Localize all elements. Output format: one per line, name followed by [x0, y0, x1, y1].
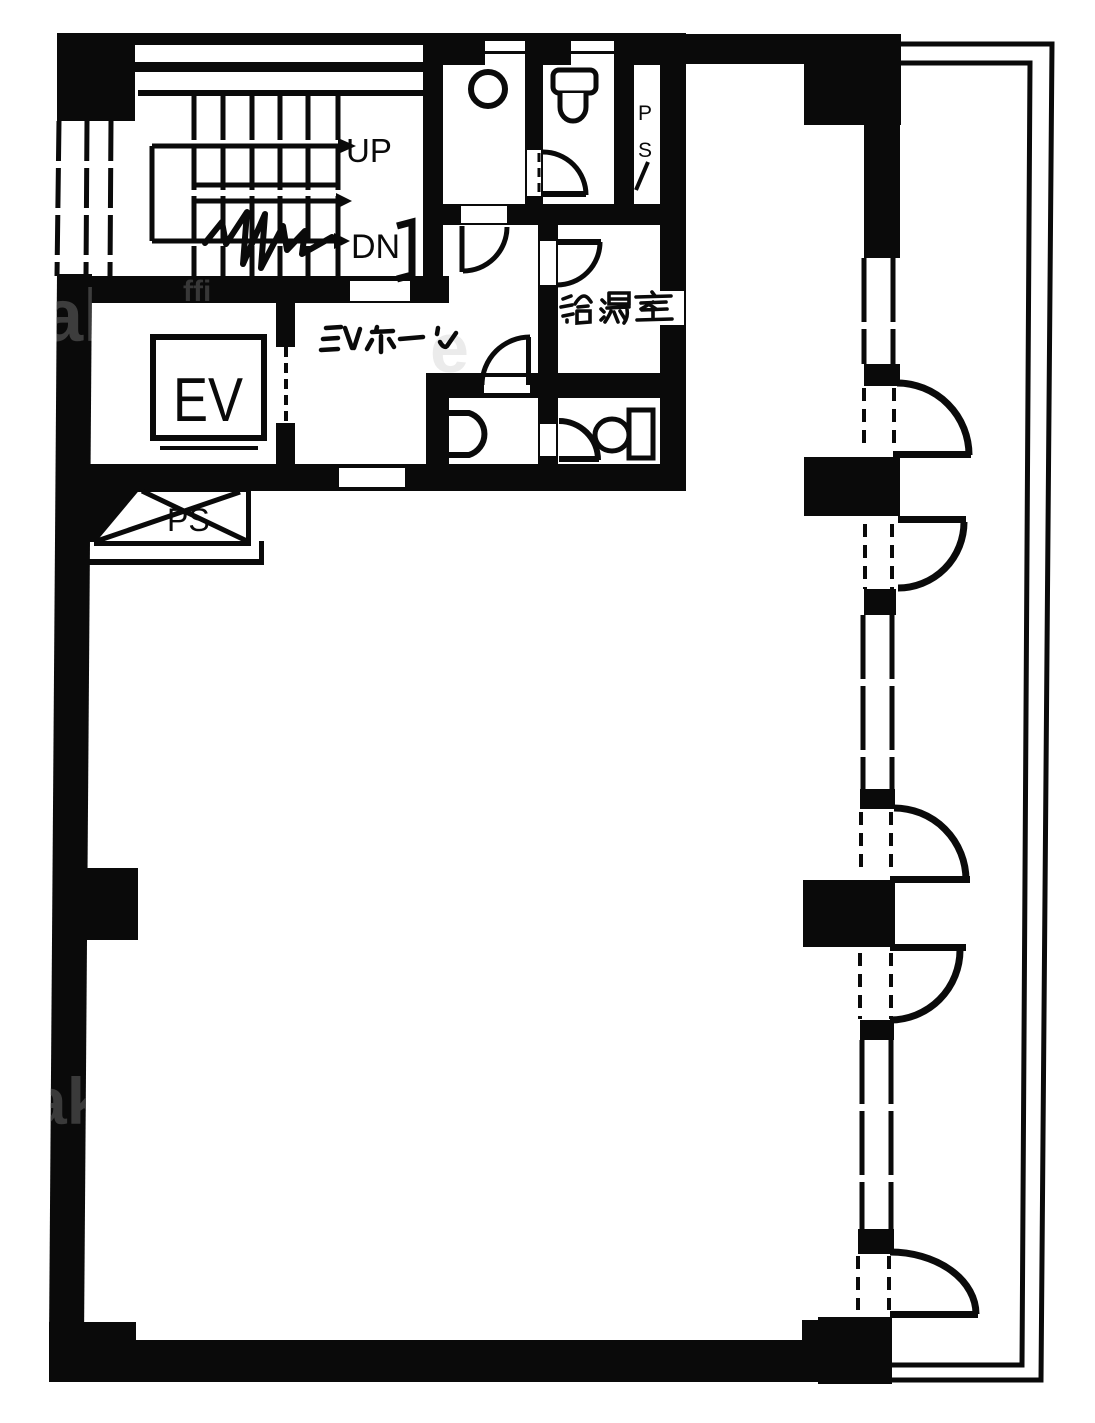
svg-text:DN: DN	[351, 228, 400, 266]
svg-text:P: P	[638, 102, 652, 125]
svg-text:EV: EV	[173, 366, 244, 435]
svg-text:S: S	[638, 139, 652, 162]
svg-text:ffi: ffi	[183, 275, 211, 308]
svg-text:PS: PS	[167, 502, 210, 538]
svg-text:UP: UP	[346, 132, 392, 169]
